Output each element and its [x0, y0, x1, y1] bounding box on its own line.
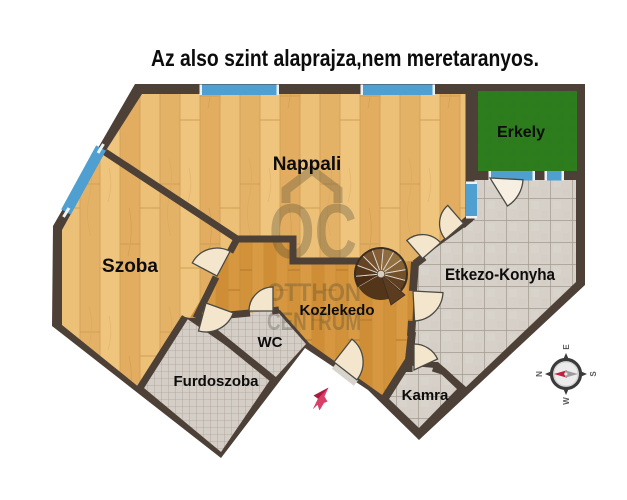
svg-text:Etkezo-Konyha: Etkezo-Konyha [445, 265, 555, 284]
svg-text:Szoba: Szoba [102, 256, 158, 277]
svg-text:S: S [589, 371, 598, 377]
svg-text:Erkely: Erkely [497, 124, 545, 141]
svg-text:WC: WC [258, 334, 283, 351]
svg-text:W: W [562, 397, 571, 405]
svg-text:N: N [535, 371, 544, 377]
svg-text:Nappali: Nappali [273, 154, 342, 175]
svg-text:Furdoszoba: Furdoszoba [174, 373, 260, 390]
svg-text:Az also szint alaprajza,nem me: Az also szint alaprajza,nem meretaranyos… [151, 45, 539, 71]
svg-text:Kozlekedo: Kozlekedo [299, 302, 374, 319]
svg-text:E: E [562, 344, 571, 350]
svg-text:Kamra: Kamra [402, 387, 449, 404]
